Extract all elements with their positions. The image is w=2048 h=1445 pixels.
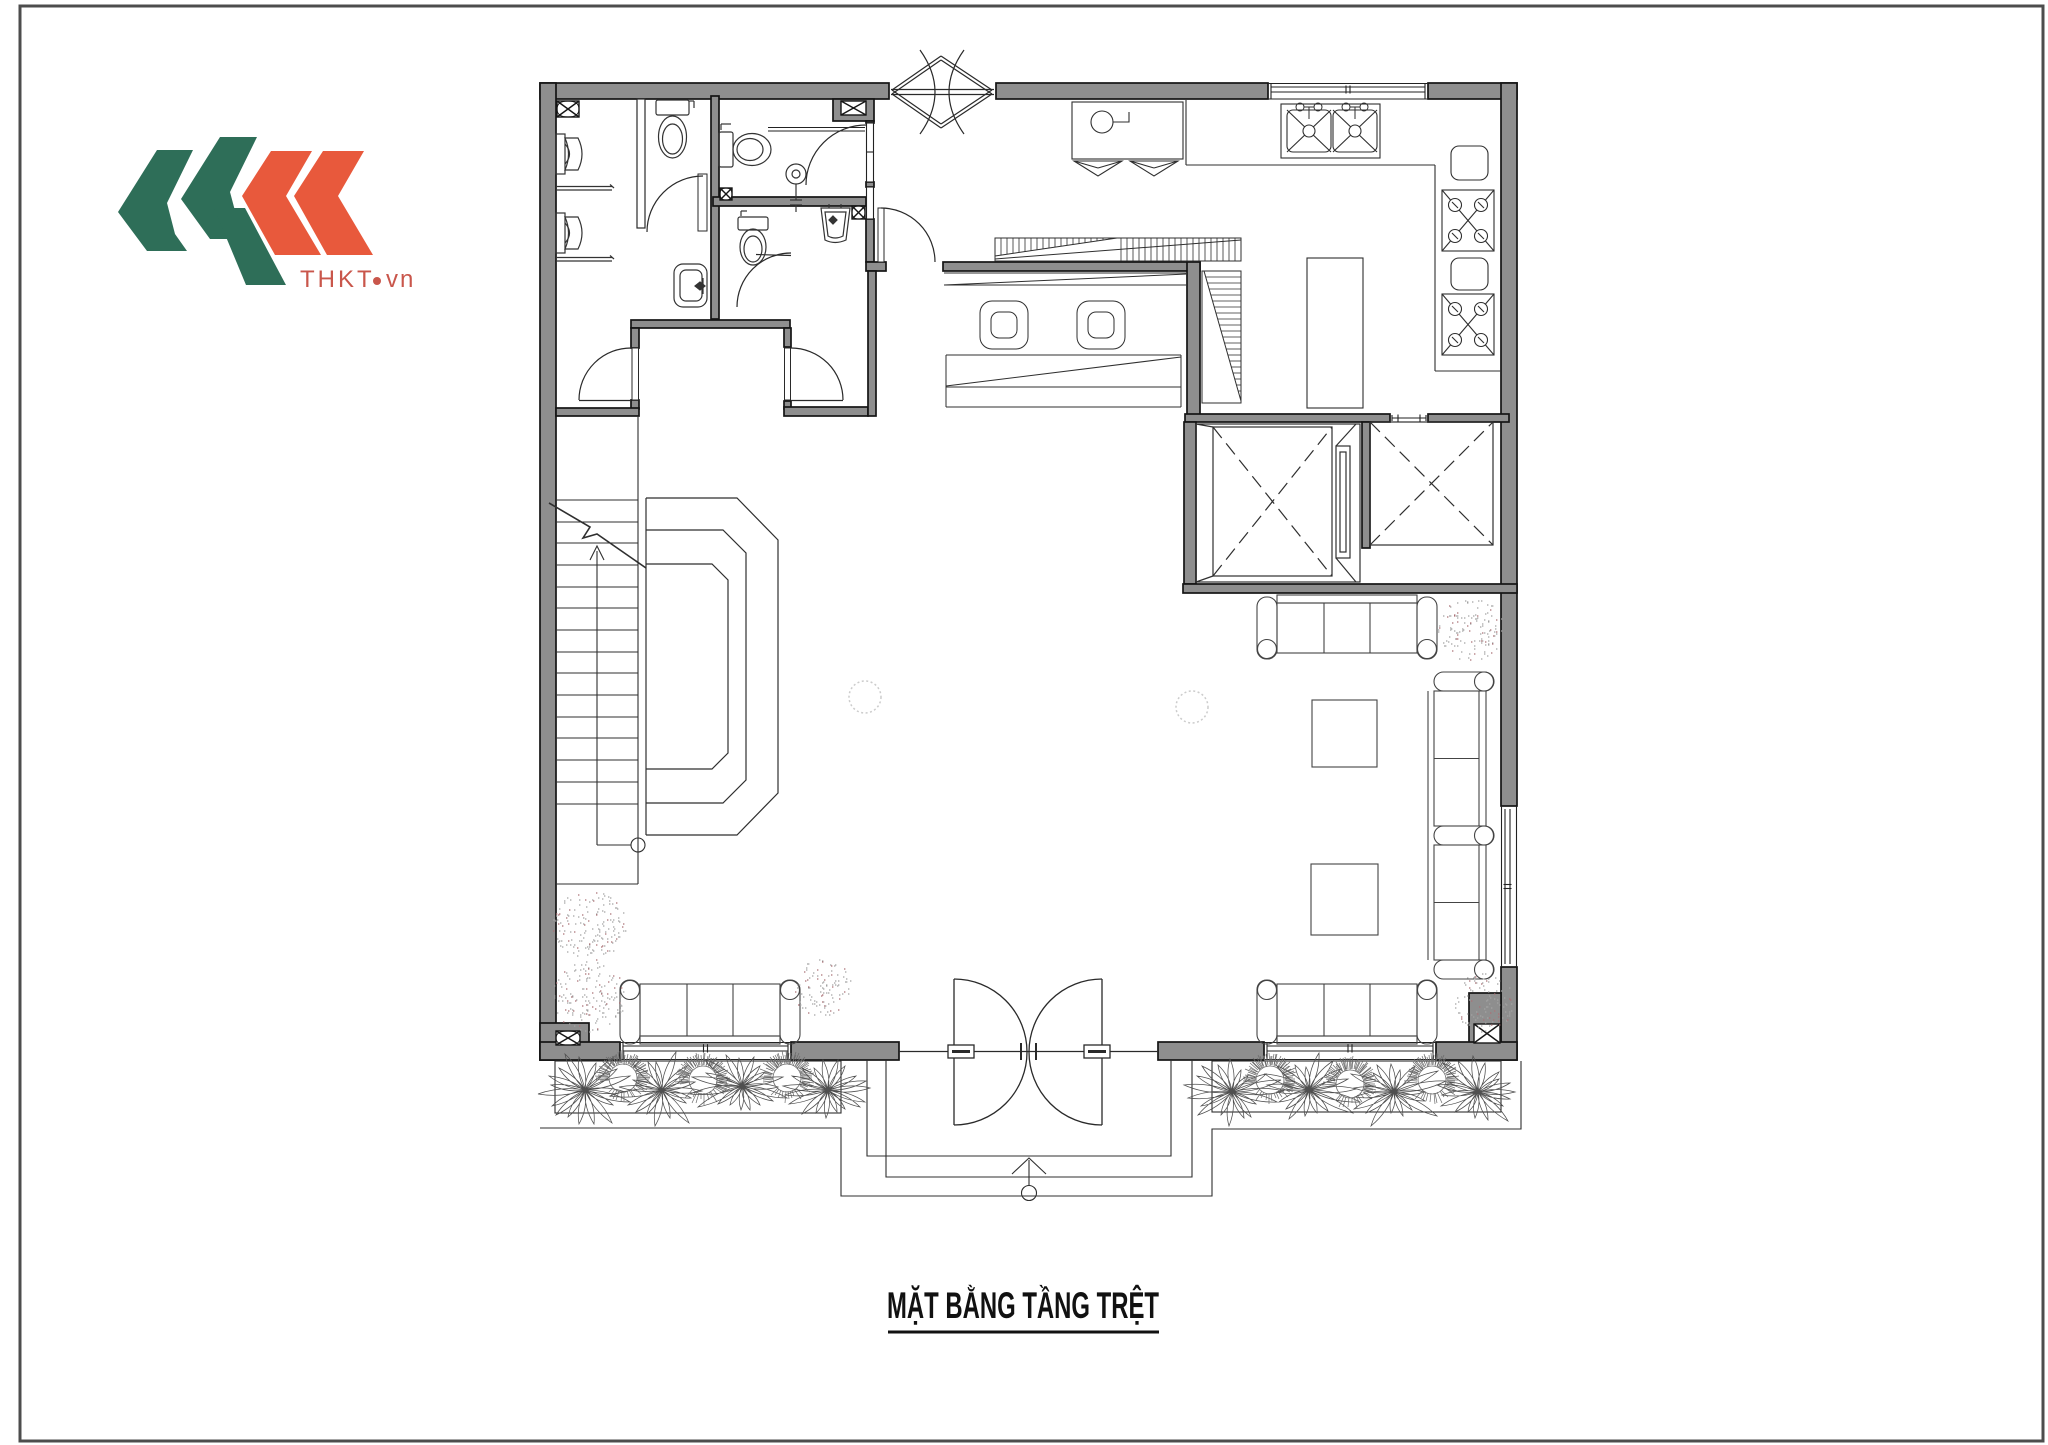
svg-text:MẶT BẰNG TẦNG TRỆT: MẶT BẰNG TẦNG TRỆT <box>887 1284 1159 1326</box>
svg-text:vn: vn <box>386 266 415 293</box>
svg-text:THKT: THKT <box>300 266 375 293</box>
